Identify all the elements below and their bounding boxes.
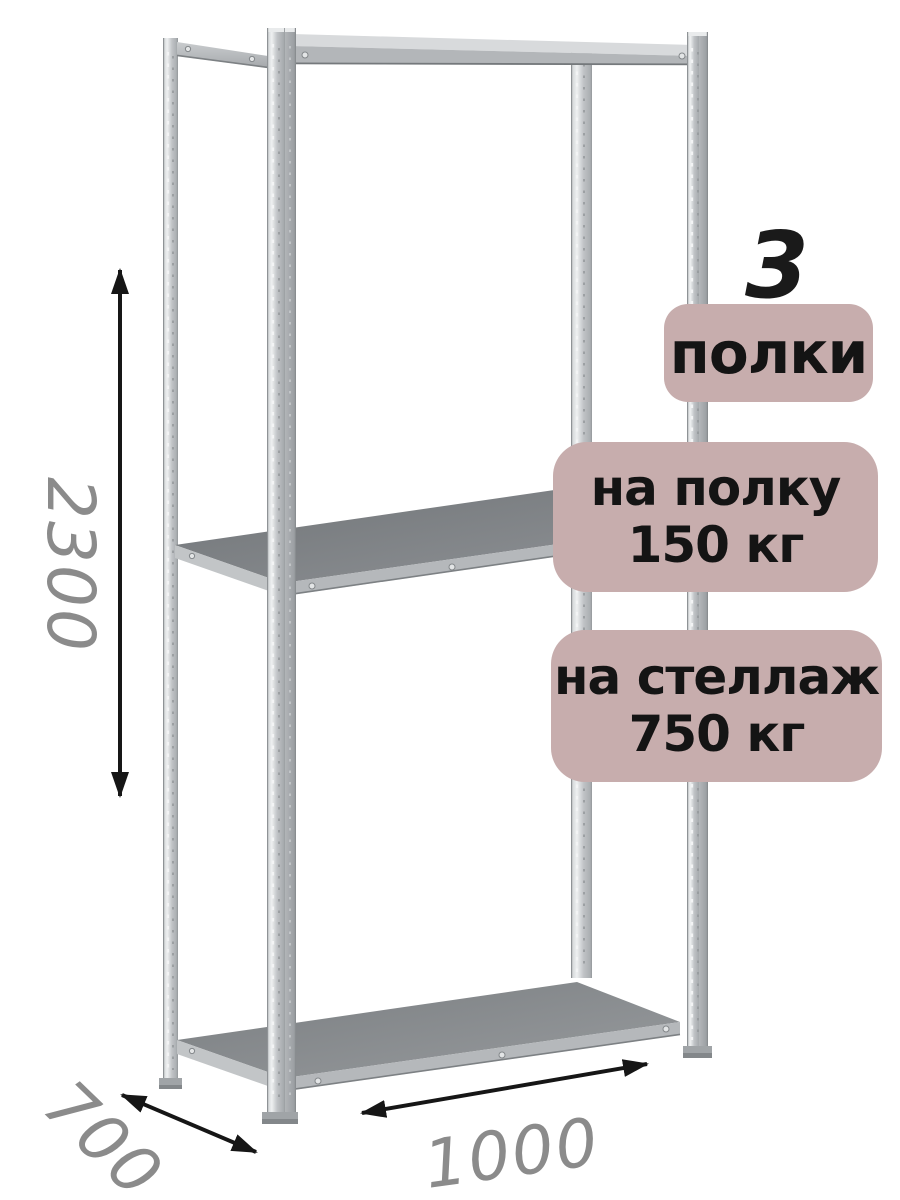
top-frame — [177, 34, 694, 68]
shelf-load-line1: на полку — [591, 460, 841, 517]
rack-load-badge: на стеллаж 750 кг — [551, 630, 882, 782]
shelf-count-badge-label: полки — [670, 320, 867, 386]
product-image: 2300 700 1000 3 полки на полку 150 кг на… — [0, 0, 900, 1200]
shelf-load-badge: на полку 150 кг — [553, 442, 878, 592]
shelf-count: 3 — [745, 220, 809, 312]
rack-load-line2: 750 кг — [629, 706, 805, 763]
shelf-count-badge: полки — [664, 304, 873, 402]
post-back-left — [159, 38, 182, 1089]
height-dimension-label: 2300 — [37, 477, 103, 653]
bottom-shelf — [177, 982, 680, 1092]
rack-load-line1: на стеллаж — [554, 649, 879, 706]
post-front-left — [262, 28, 298, 1124]
shelf-load-line2: 150 кг — [628, 517, 804, 574]
rack-illustration — [0, 0, 900, 1200]
